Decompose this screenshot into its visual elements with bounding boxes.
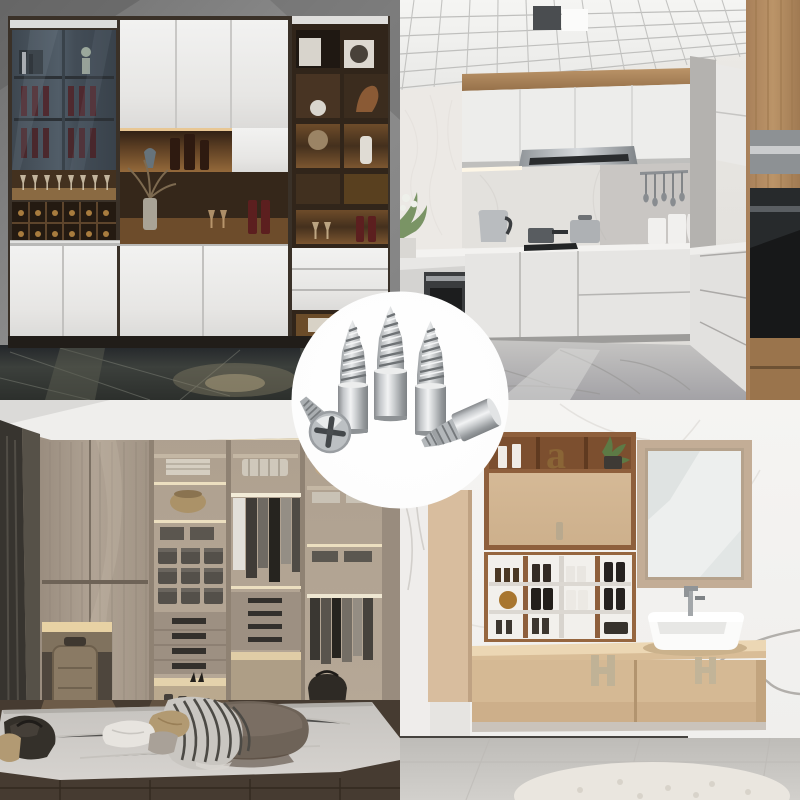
svg-text:a: a xyxy=(546,432,566,477)
